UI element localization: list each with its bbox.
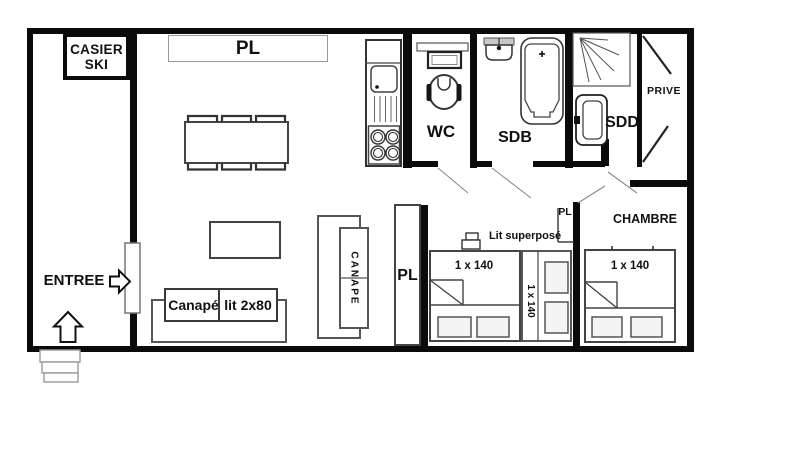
kitchen-unit [366,40,401,166]
sofa-bed-label-canape: Canapé [168,297,219,313]
coffee-table [210,222,280,258]
room-label-chambre: CHAMBRE [598,211,692,228]
room-label-sdb: SDB [479,128,551,148]
bathtub-icon [521,38,563,124]
room-label-entree: ENTREE [40,273,108,289]
sofa-canape-label: CANAPE [348,239,361,319]
door-swing-lines [438,168,637,203]
pl-cabinet-label: PL [395,264,420,288]
shower-icon [573,33,630,86]
sofa-bed-label-left: Canapé [164,288,223,322]
sofa-bed-label-size: lit 2x80 [224,297,271,313]
pillow-icon [477,317,509,337]
caption-lit-superpose: Lit superposé [480,229,570,244]
dining-table [185,116,288,170]
kitchen-sink-icon [371,66,397,92]
floor-plan: CASIER SKI PL ENTREE WC SDB SDD PRIVE CH… [0,0,800,450]
closet-pl-top-label: PL [236,38,260,60]
casier-ski-box: CASIER SKI [63,33,130,80]
wc-window [417,43,468,51]
room-label-wc: WC [413,122,469,142]
entry-up-arrow-icon [54,312,82,342]
pillow-icon [438,317,471,337]
room-label-prive: PRIVE [640,84,688,100]
bed-middle-size-label: 1 x 140 [441,259,507,274]
ladder-icon [462,233,480,249]
pillow-icon [592,317,622,337]
pillow-icon [631,317,662,337]
closet-pl-top: PL [168,35,328,62]
bunk-bed-size-label: 1 x 140 [525,283,537,319]
toilet-icon [427,52,462,109]
washbasin-sdb-icon [484,38,514,60]
stairs-icon [40,350,80,382]
bed-chambre-size-label: 1 x 140 [597,259,663,274]
closet-pl-bedroom-label: PL [556,206,574,220]
casier-ski-label-line2: SKI [85,57,108,72]
sofa-bed-label-right: lit 2x80 [218,288,278,322]
room-label-sdd: SDD [600,113,644,133]
casier-ski-label-line1: CASIER [70,42,123,57]
sofa-canape [318,216,368,338]
